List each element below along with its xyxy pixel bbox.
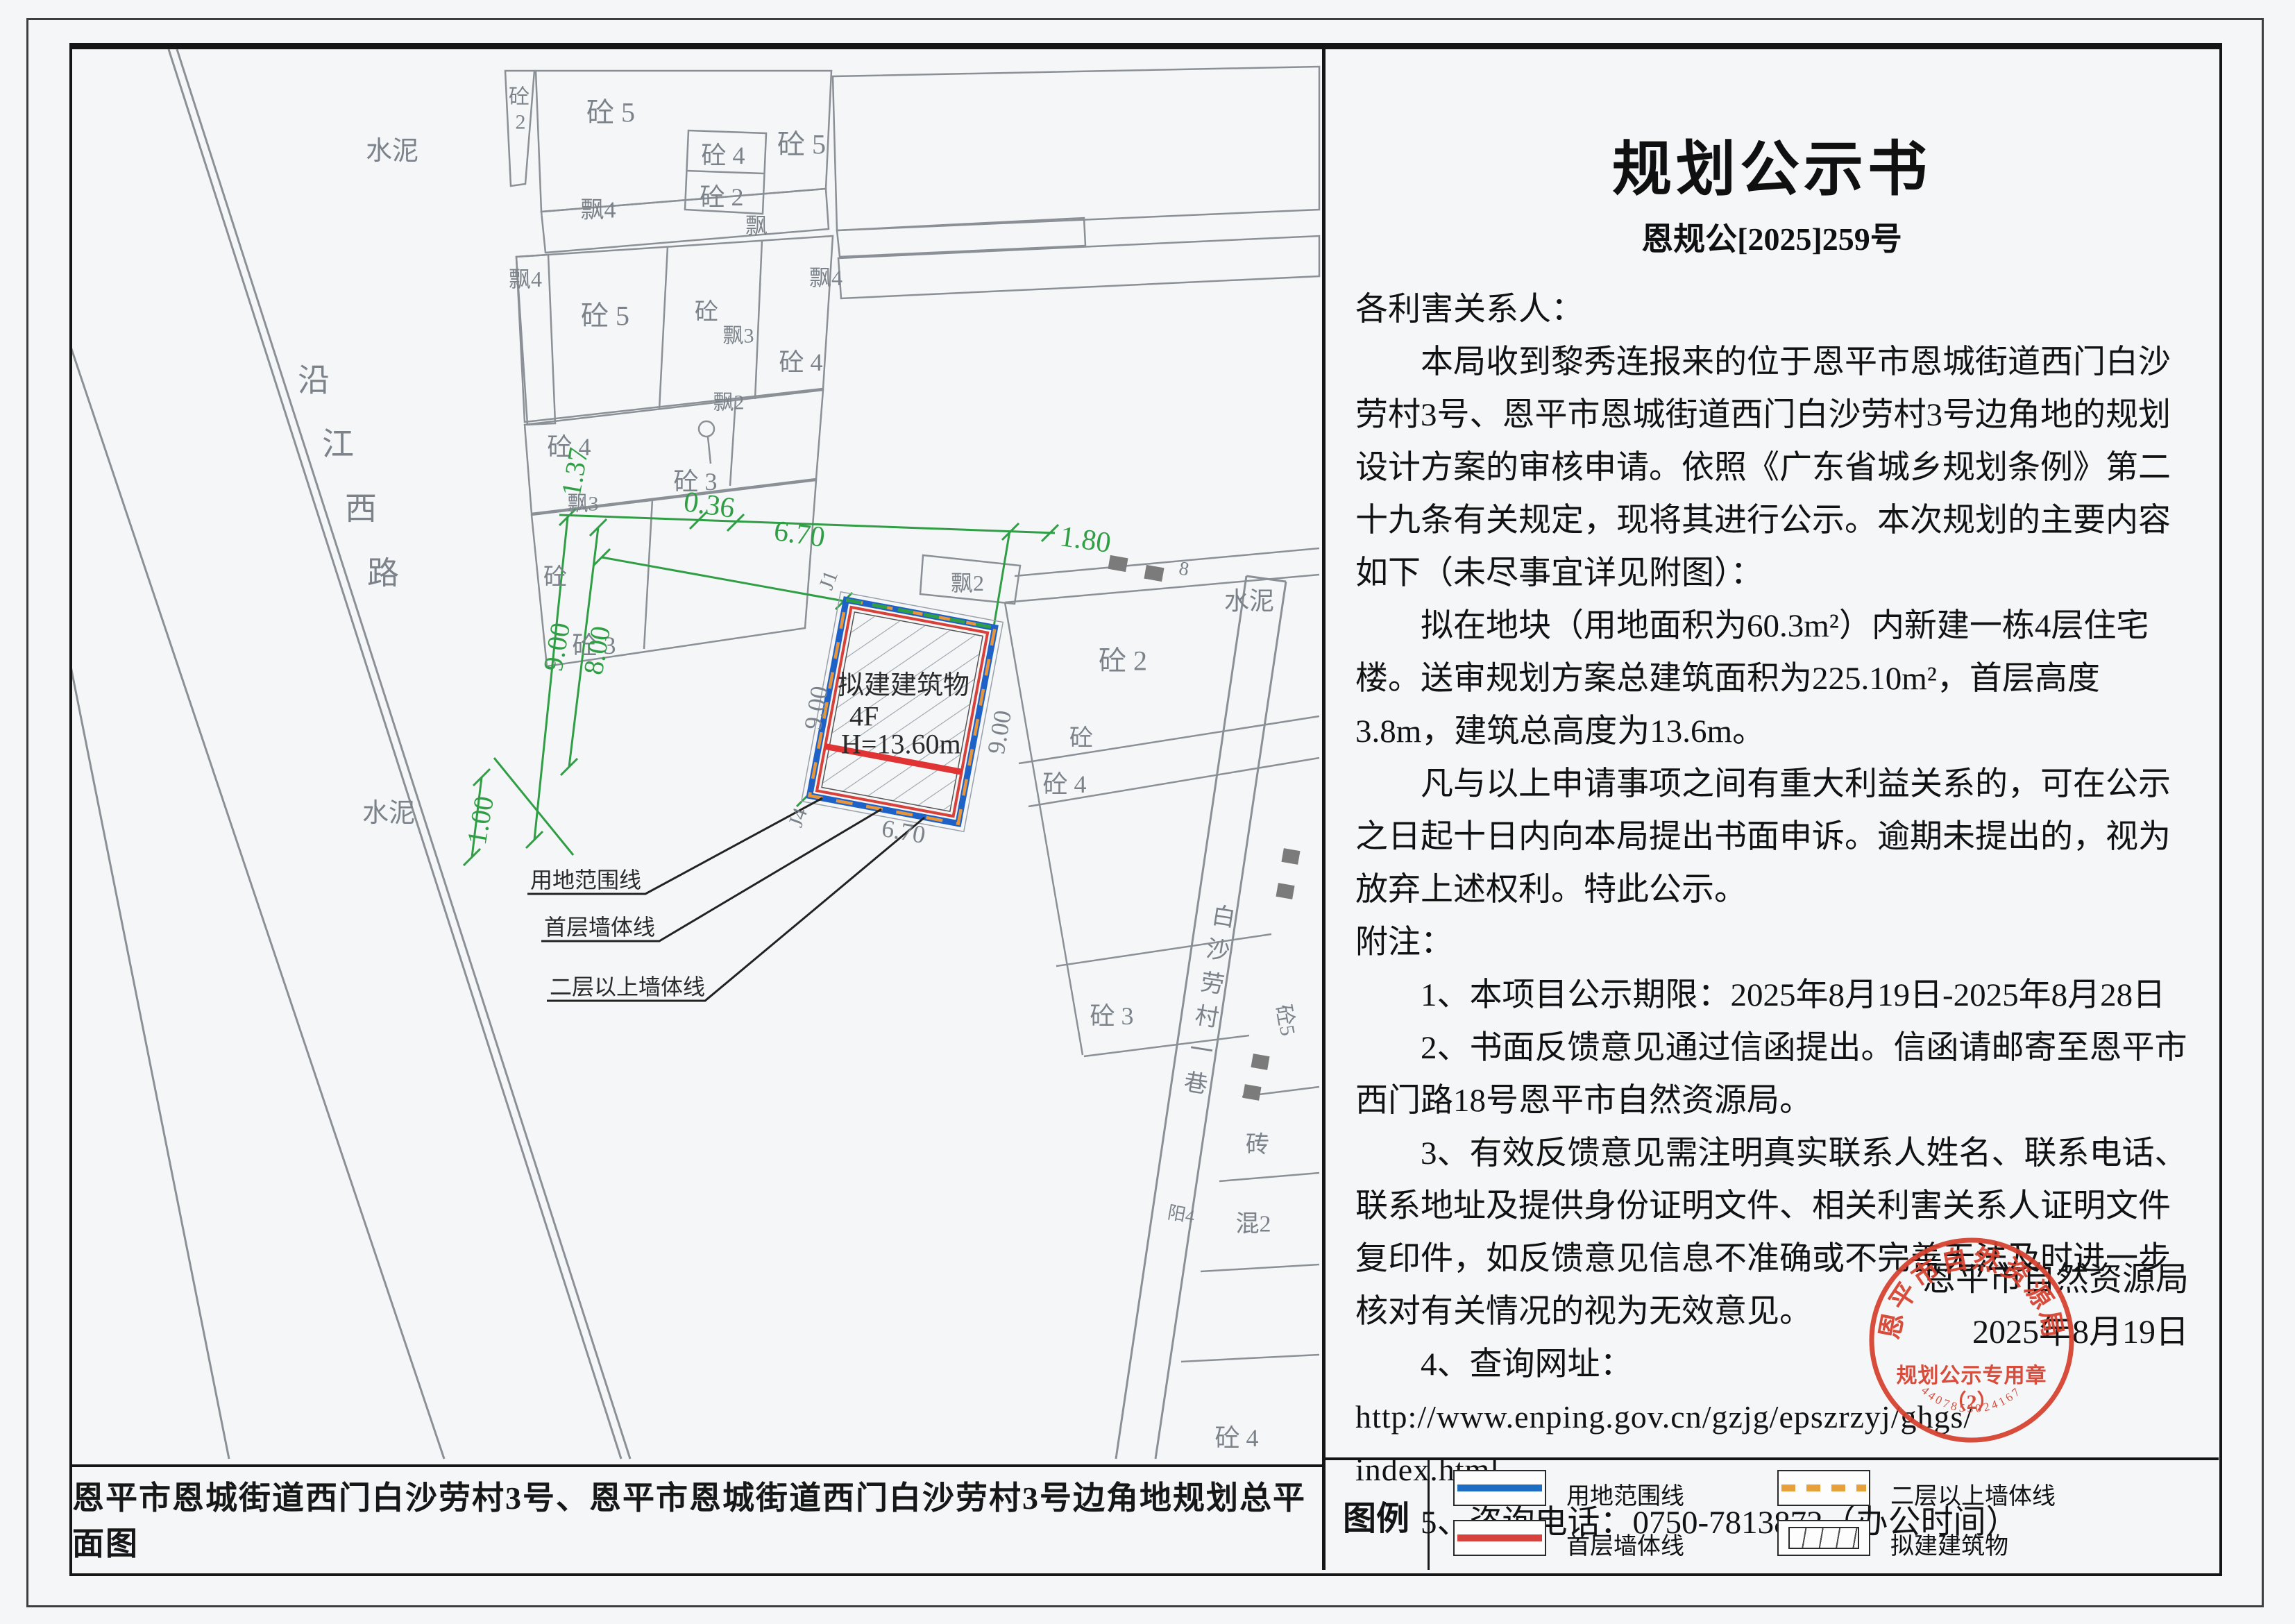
stamp-center-text: 规划公示专用章 xyxy=(1897,1364,2047,1387)
map-label: J4 xyxy=(784,805,812,830)
map-label: 砼 4 xyxy=(779,348,822,376)
map-label: 砼 xyxy=(509,86,530,109)
legend-swatch-site-boundary xyxy=(1453,1470,1546,1506)
map-label: 飘4 xyxy=(581,198,616,223)
map-label: 砼 xyxy=(1069,725,1093,752)
map-label: 砼 2 xyxy=(1099,645,1147,677)
map-label: 沙 xyxy=(1204,936,1231,965)
map-label: 沿 xyxy=(298,363,330,398)
paragraph: 本局收到黎秀连报来的位于恩平市恩城街道西门白沙劳村3号、恩平市恩城街道西门白沙劳… xyxy=(1355,336,2188,600)
map-label: J1 xyxy=(815,568,842,593)
note-item: 2、书面反馈意见通过信函提出。信函请邮寄至恩平市西门路18号恩平市自然资源局。 xyxy=(1355,1022,2188,1127)
map-label: 路 xyxy=(367,556,399,591)
map-label: 白 xyxy=(1210,902,1237,932)
map-label: 砼 3 xyxy=(1090,1002,1133,1030)
map-label: 二层以上墙体线 xyxy=(550,974,705,999)
map-label: 巷 xyxy=(1182,1069,1209,1099)
stamp-ring-text: 恩平市自然资源局 xyxy=(1876,1244,2068,1342)
map-label: 阳4 xyxy=(1166,1202,1196,1226)
planning-notice-sheet: 水泥沿江西路水泥水泥砼2砼 5飘4砼 4砼 2砼 5飘飘4飘4砼 5砼飘3砼 4… xyxy=(0,0,2295,1624)
map-label: 首层墙体线 xyxy=(544,915,655,940)
map-label: 水泥 xyxy=(1224,587,1274,615)
map-label: 1.00 xyxy=(461,794,500,847)
map-label: 江 xyxy=(322,427,354,462)
official-stamp: 恩平市自然资源局 规划公示专用章 （2） 4407853024167 xyxy=(1865,1234,2078,1446)
notes-heading: 附注： xyxy=(1355,916,2188,969)
map-label: 砼5 xyxy=(1271,1003,1299,1038)
map-label: 砼 4 xyxy=(1214,1424,1258,1452)
proposed-building xyxy=(802,592,1003,832)
map-label: 2 xyxy=(516,111,526,134)
legend-swatch-upper-wall xyxy=(1777,1470,1870,1506)
map-label: 混2 xyxy=(1236,1212,1271,1237)
map-label: 砼 4 xyxy=(701,142,745,169)
map-label: 9.00 xyxy=(982,709,1017,756)
paragraph: 拟在地块（用地面积为60.3m²）内新建一栋4层住宅楼。送审规划方案总建筑面积为… xyxy=(1355,600,2188,758)
map-label: 砼 5 xyxy=(581,301,629,332)
map-label: 砼 xyxy=(543,564,567,591)
map-label: 西 xyxy=(345,491,377,527)
legend-label: 用地范围线 xyxy=(1566,1477,1684,1511)
map-label: 4F xyxy=(849,701,879,732)
map-label: 砼 5 xyxy=(586,97,635,128)
map-label: 飘2 xyxy=(713,391,745,414)
map-label: 1.80 xyxy=(1058,521,1112,559)
map-label: 砼 2 xyxy=(700,183,743,211)
legend-label: 拟建建筑物 xyxy=(1890,1527,2008,1561)
map-label: 水泥 xyxy=(366,137,418,166)
paragraph: 凡与以上申请事项之间有重大利益关系的，可在公示之日起十日内向本局提出书面申诉。逾… xyxy=(1355,758,2188,916)
note-item: 1、本项目公示期限：2025年8月19日-2025年8月28日 xyxy=(1355,969,2188,1022)
map-label: H=13.60m xyxy=(841,729,961,760)
road-lines xyxy=(72,49,1286,1459)
map-label: 砼 5 xyxy=(777,129,826,160)
map-label: 飘 xyxy=(745,213,768,238)
map-label: 劳 xyxy=(1199,969,1226,999)
salutation: 各利害关系人： xyxy=(1355,283,2188,336)
map-label: 飘2 xyxy=(951,570,984,595)
site-plan-map: 水泥沿江西路水泥水泥砼2砼 5飘4砼 4砼 2砼 5飘飘4飘4砼 5砼飘3砼 4… xyxy=(72,49,1322,1464)
map-label: 用地范围线 xyxy=(530,868,641,893)
legend-title: 图例 xyxy=(1325,1460,1430,1570)
map-caption-strip: 恩平市恩城街道西门白沙劳村3号、恩平市恩城街道西门白沙劳村3号边角地规划总平面图 xyxy=(72,1464,1322,1570)
map-label: 飘4 xyxy=(509,267,542,291)
map-label: 水泥 xyxy=(362,799,415,828)
map-label: 飘4 xyxy=(809,265,842,290)
map-label: 砖 xyxy=(1246,1132,1269,1158)
legend-swatch-ground-floor xyxy=(1453,1520,1546,1556)
map-caption: 恩平市恩城街道西门白沙劳村3号、恩平市恩城街道西门白沙劳村3号边角地规划总平面图 xyxy=(72,1473,1322,1564)
map-label: 6.70 xyxy=(772,515,827,554)
legend-label: 二层以上墙体线 xyxy=(1890,1477,2056,1511)
legend-label: 首层墙体线 xyxy=(1566,1527,1684,1561)
callout-leaders xyxy=(527,798,924,1001)
map-label: 一 xyxy=(1187,1036,1214,1065)
map-label: 砼 xyxy=(695,299,718,325)
notice-title: 规划公示书 xyxy=(1355,120,2188,207)
notice-panel: 规划公示书 恩规公[2025]259号 各利害关系人： 本局收到黎秀连报来的位于… xyxy=(1325,49,2219,1457)
legend-swatch-proposed-building xyxy=(1777,1520,1870,1556)
map-label: 飘3 xyxy=(723,325,754,348)
map-label: 村 xyxy=(1193,1002,1221,1032)
map-label: 砼 4 xyxy=(1042,770,1086,798)
legend-panel: 图例 用地范围线 首层墙体线 二层以上墙体线 拟建建筑物 xyxy=(1325,1457,2219,1570)
doc-number: 恩规公[2025]259号 xyxy=(1355,214,2188,260)
map-label: 拟建建筑物 xyxy=(838,671,969,700)
